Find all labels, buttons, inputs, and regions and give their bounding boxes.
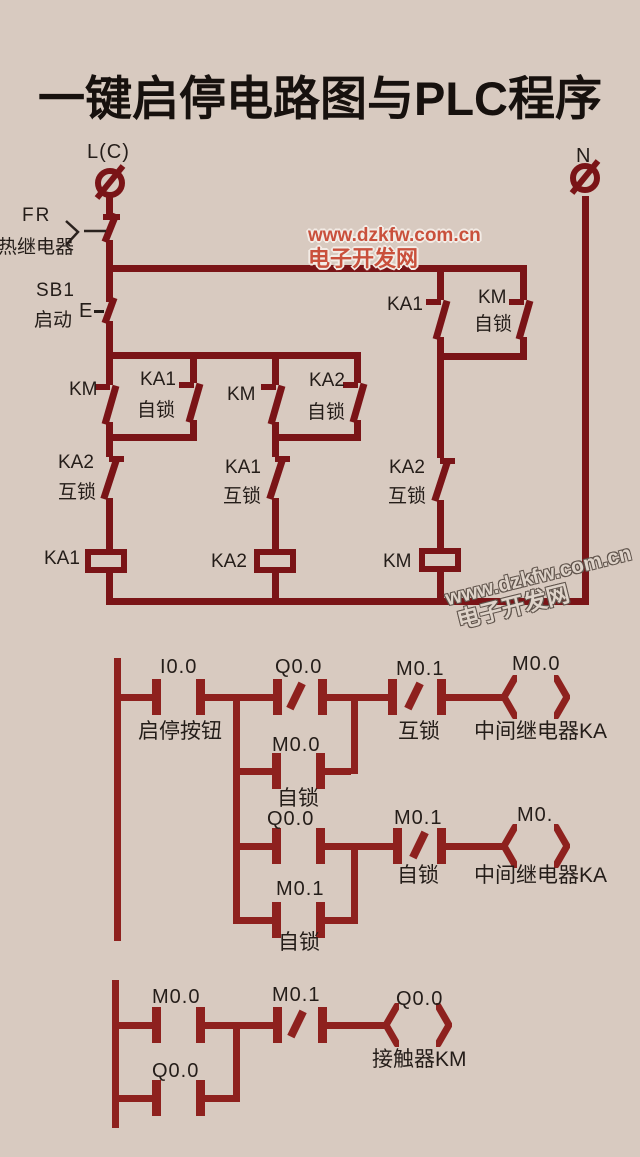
ka1-interlock-arm — [266, 456, 286, 500]
wire — [327, 1022, 385, 1029]
coil-left-arc — [501, 675, 517, 719]
label-km-p1: KM — [69, 379, 98, 401]
label-ka2-p2: KA2 — [309, 370, 345, 392]
label-n3-m00: M0.0 — [152, 986, 200, 1009]
branch-vertical — [351, 697, 358, 774]
wire — [106, 359, 113, 385]
wire — [437, 272, 444, 300]
label-km-p2: KM — [227, 384, 256, 406]
wire — [119, 1022, 152, 1029]
label-sb1: SB1 — [36, 280, 75, 302]
ka2-interlock-arm — [100, 456, 120, 500]
label-km-top-note: 自锁 — [474, 309, 512, 336]
label-n1-coil: M0.0 — [512, 653, 560, 676]
label-sb1-name: 启动 — [34, 305, 72, 332]
contact-bar — [273, 679, 282, 715]
watermark-gray: www.dzkfw.com.cn 电子开发网 — [443, 542, 640, 635]
ka2-selflock-tick — [343, 382, 358, 388]
label-n2-q00: Q0.0 — [267, 808, 314, 831]
contact-bar — [196, 1007, 205, 1043]
nc-slash — [409, 831, 428, 860]
label-ka2-p2-note: 自锁 — [307, 397, 345, 424]
label-km-top: KM — [478, 287, 507, 309]
label-ka1-interlock: KA1 — [225, 457, 261, 479]
label-sb1-e: E — [79, 300, 93, 323]
km2-contact-arm — [268, 385, 286, 425]
wire — [325, 843, 393, 850]
label-l-terminal: L(C) — [87, 141, 130, 164]
contact-bar — [272, 828, 281, 864]
label-n1-coil-name: 中间继电器KA — [474, 715, 607, 745]
wire-n-line — [582, 196, 589, 602]
contact-bar — [316, 828, 325, 864]
contact-bar — [152, 679, 161, 715]
nc-slash — [287, 1010, 306, 1039]
wire — [272, 355, 279, 385]
wire — [437, 353, 527, 360]
ka1-selflock-tick — [179, 382, 194, 388]
label-ka1-p1-note: 自锁 — [137, 395, 175, 422]
ka2-selflock-arm — [350, 383, 368, 423]
ladder-left-rail — [114, 658, 121, 941]
label-ka2-interlock-note: 互锁 — [58, 477, 96, 504]
label-i00: I0.0 — [160, 656, 197, 679]
wire — [354, 355, 361, 383]
km-selflock-tick — [509, 299, 524, 305]
wire — [106, 441, 113, 457]
contact-bar — [152, 1007, 161, 1043]
label-coil-km: KM — [383, 551, 412, 573]
contact-bar — [318, 1007, 327, 1043]
ladder-left-rail — [112, 980, 119, 1128]
wire — [325, 768, 351, 775]
watermark-red-url: www.dzkfw.com.cn — [308, 226, 481, 246]
wire — [240, 917, 272, 924]
wire — [325, 917, 351, 924]
ka1-coil — [85, 549, 127, 573]
label-i00-name: 启停按钮 — [138, 715, 222, 745]
label-n2-m01: M0.1 — [394, 807, 442, 830]
wire — [240, 843, 272, 850]
watermark-red-name: 电子开发网 — [308, 247, 481, 270]
label-ka1-p1: KA1 — [140, 369, 176, 391]
ka2-coil — [254, 549, 296, 573]
wire — [520, 272, 527, 300]
label-coil-ka1: KA1 — [44, 548, 80, 570]
contact-bar — [388, 679, 397, 715]
wire — [121, 694, 152, 701]
wire — [354, 420, 361, 441]
wire — [272, 434, 361, 441]
contact-bar — [318, 679, 327, 715]
label-ka1-top: KA1 — [387, 294, 423, 316]
label-n2-br-m01: M0.1 — [276, 878, 324, 901]
wire — [240, 768, 272, 775]
diagram-canvas: 一键启停电路图与PLC程序 — [0, 0, 640, 1157]
label-n2-coil: M0. — [517, 804, 553, 827]
label-m01-note: 互锁 — [398, 715, 440, 745]
km2-contact-tick — [261, 384, 276, 390]
label-q00-nc: Q0.0 — [275, 656, 322, 679]
label-n2-coil-name: 中间继电器KA — [474, 859, 607, 889]
label-n3-br-q00: Q0.0 — [152, 1060, 199, 1083]
label-ka1-interlock-note: 互锁 — [223, 481, 261, 508]
wire-bus2 — [106, 352, 361, 359]
label-n2-br-m01-note: 自锁 — [278, 926, 320, 956]
contact-bar — [273, 1007, 282, 1043]
label-ka2-interlock: KA2 — [58, 452, 94, 474]
wire — [272, 441, 279, 457]
contact-bar — [152, 1080, 161, 1116]
wire — [437, 360, 444, 458]
wire — [437, 500, 444, 548]
wire — [106, 321, 113, 355]
label-n-terminal: N — [576, 145, 591, 168]
label-m01-nc: M0.1 — [396, 658, 444, 681]
wire — [106, 498, 113, 549]
ka1-top-contact-arm — [433, 300, 451, 340]
contact-bar — [196, 679, 205, 715]
km-contact-arm — [102, 385, 120, 425]
label-fr: FR — [22, 205, 51, 227]
label-ka2-interlock-r-note: 互锁 — [388, 481, 426, 508]
branch-vertical — [233, 1025, 240, 1102]
wire — [190, 355, 197, 383]
wire — [446, 843, 505, 850]
label-n3-m01: M0.1 — [272, 984, 320, 1007]
label-fr-name: 热继电器 — [0, 232, 74, 259]
wire — [106, 434, 197, 441]
nc-slash — [404, 682, 423, 711]
wire — [446, 694, 505, 701]
page-title: 一键启停电路图与PLC程序 — [0, 60, 640, 129]
label-n3-coil-name: 接触器KM — [372, 1043, 467, 1073]
label-ka2-interlock-r: KA2 — [389, 457, 425, 479]
contact-bar — [196, 1080, 205, 1116]
branch-vertical — [233, 697, 240, 924]
label-coil-ka2: KA2 — [211, 551, 247, 573]
ka1-selflock-arm — [186, 383, 204, 423]
label-n2-m01-note: 自锁 — [397, 859, 439, 889]
wire — [205, 1095, 240, 1102]
watermark-red: www.dzkfw.com.cn 电子开发网 — [308, 226, 481, 270]
ka2-interlock-r-arm — [431, 458, 451, 502]
km-selflock-arm — [516, 300, 534, 340]
km-coil — [419, 548, 461, 572]
branch-vertical — [351, 846, 358, 924]
label-br-m00: M0.0 — [272, 734, 320, 757]
nc-slash — [286, 682, 305, 711]
wire — [119, 1095, 152, 1102]
coil-right-arc — [554, 675, 570, 719]
wire — [190, 420, 197, 441]
contact-bar — [437, 679, 446, 715]
sb1-e-dash — [94, 310, 104, 313]
ka1-top-contact-tick — [426, 299, 441, 305]
wire — [272, 498, 279, 549]
label-n3-coil: Q0.0 — [396, 988, 443, 1011]
